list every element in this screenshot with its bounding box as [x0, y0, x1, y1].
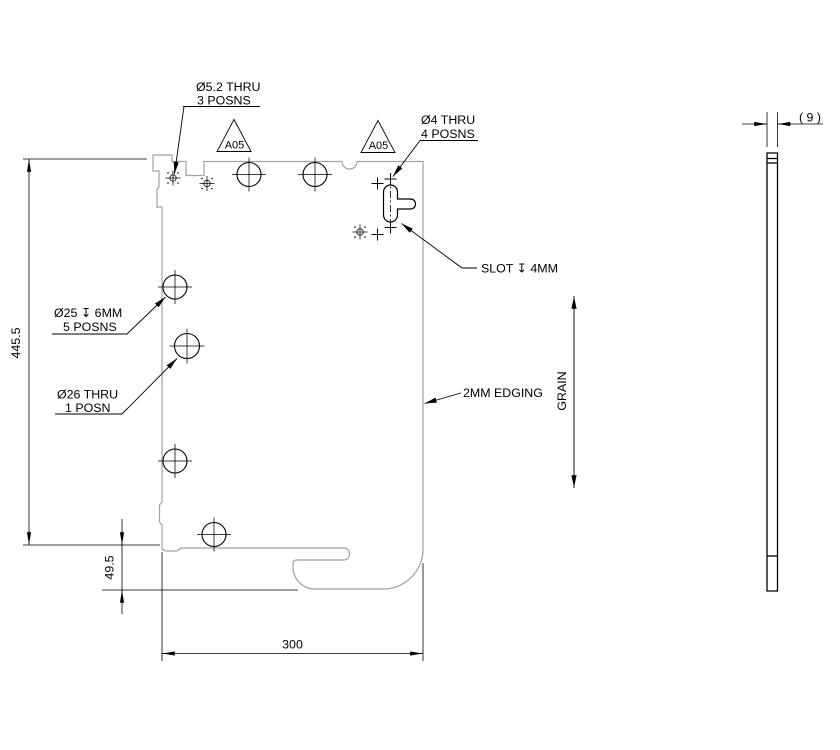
callout-hole-25: Ø25 ↧ 6MM 5 POSNS	[52, 297, 166, 334]
flag-a05-right: A05	[361, 121, 395, 153]
holes-25-26	[158, 158, 332, 552]
callout-edging-leader	[425, 393, 462, 404]
holes-5-2	[166, 171, 368, 240]
callout-hole-5-2-leader	[175, 107, 185, 175]
target-hole	[166, 171, 181, 186]
grain-label: GRAIN	[555, 371, 569, 410]
slot	[384, 177, 416, 230]
dim-hook-offset: 49.5	[102, 519, 298, 614]
dim-thickness: ( 9 )	[742, 111, 823, 148]
callout-hole-4: Ø4 THRU 4 POSNS	[393, 113, 478, 177]
plus-mark	[372, 178, 384, 190]
dim-thickness-label: ( 9 )	[799, 111, 821, 125]
drawing-sheet: A05 A05 Ø5.2 THRU 3 POSNS Ø4 THRU 4 POSN…	[0, 0, 840, 750]
callout-hole-4-line2: 4 POSNS	[421, 127, 475, 141]
dim-height: 445.5	[9, 159, 160, 545]
callout-hole-26-line1: Ø26 THRU	[57, 388, 118, 402]
callout-hole-26: Ø26 THRU 1 POSN	[55, 359, 177, 416]
target-hole	[353, 225, 368, 240]
panel-outline	[153, 155, 423, 589]
flag-a05-right-label: A05	[369, 140, 389, 152]
cad-drawing: A05 A05 Ø5.2 THRU 3 POSNS Ø4 THRU 4 POSN…	[0, 0, 840, 750]
callout-slot: SLOT ↧ 4MM	[402, 224, 558, 276]
callout-slot-label: SLOT ↧ 4MM	[481, 262, 558, 276]
callout-hole-4-leader	[393, 141, 420, 177]
front-view: A05 A05 Ø5.2 THRU 3 POSNS Ø4 THRU 4 POSN…	[9, 80, 574, 661]
side-view-outline	[767, 153, 778, 591]
callout-hole-5-2-line2: 3 POSNS	[197, 94, 251, 108]
callout-hole-5-2-line1: Ø5.2 THRU	[196, 80, 261, 94]
grain-indicator: GRAIN	[555, 296, 574, 488]
center-mark	[170, 329, 205, 364]
slot-outline	[384, 185, 416, 222]
callout-hole-26-leader	[122, 359, 177, 415]
plus-mark	[372, 229, 384, 241]
dim-hook-label: 49.5	[103, 555, 117, 579]
side-view: ( 9 )	[742, 111, 823, 592]
callout-hole-25-leader	[127, 297, 166, 334]
center-mark	[232, 158, 266, 192]
callout-slot-leader	[402, 224, 478, 269]
callout-edging: 2MM EDGING	[425, 386, 543, 404]
target-hole	[200, 176, 215, 191]
callout-edging-label: 2MM EDGING	[463, 386, 543, 400]
callout-hole-25-line1: Ø25 ↧ 6MM	[54, 306, 122, 320]
center-mark	[298, 158, 332, 192]
center-mark	[158, 444, 192, 478]
dim-height-label: 445.5	[9, 327, 23, 358]
callout-hole-4-line1: Ø4 THRU	[421, 113, 475, 127]
dim-width-label: 300	[282, 638, 303, 652]
flag-a05-left: A05	[217, 120, 251, 152]
flag-a05-left-label: A05	[225, 140, 245, 152]
center-mark	[197, 518, 231, 552]
callout-hole-26-line2: 1 POSN	[65, 401, 110, 415]
callout-hole-5-2: Ø5.2 THRU 3 POSNS	[175, 80, 261, 174]
callout-hole-25-line2: 5 POSNS	[63, 320, 117, 334]
